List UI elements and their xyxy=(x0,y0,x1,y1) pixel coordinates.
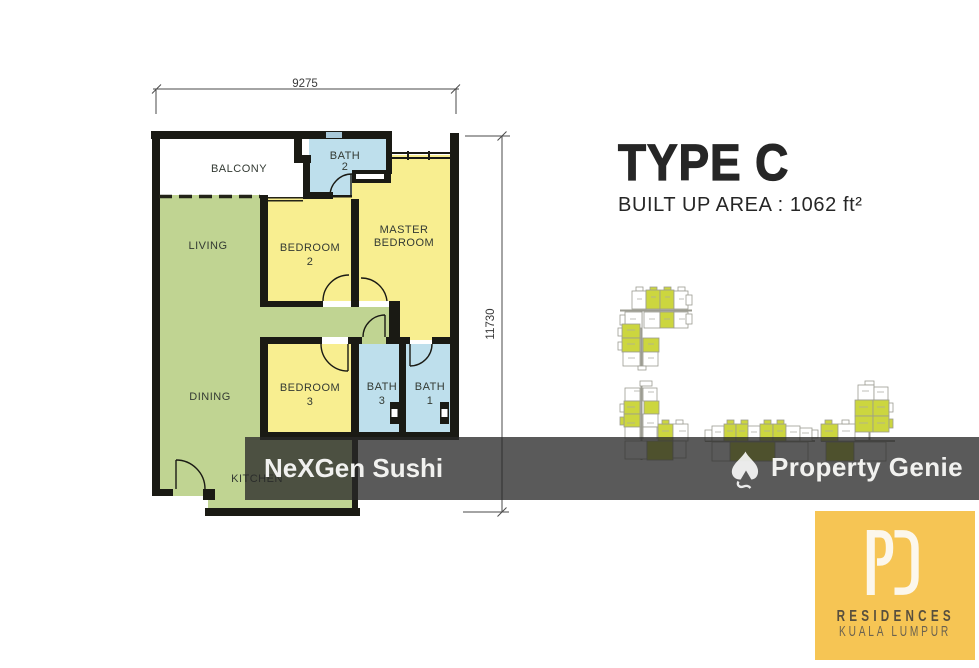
svg-text:9275: 9275 xyxy=(292,78,318,90)
svg-text:BEDROOM: BEDROOM xyxy=(280,242,340,254)
svg-text:DINING: DINING xyxy=(189,391,231,403)
svg-text:3: 3 xyxy=(307,396,314,408)
svg-text:BALCONY: BALCONY xyxy=(211,163,267,175)
svg-text:3: 3 xyxy=(379,395,386,407)
svg-text:BATH: BATH xyxy=(415,381,446,393)
svg-text:BEDROOM: BEDROOM xyxy=(374,237,434,249)
svg-text:1: 1 xyxy=(427,395,434,407)
svg-text:LIVING: LIVING xyxy=(188,240,227,252)
svg-text:MASTER: MASTER xyxy=(380,224,429,236)
svg-text:BEDROOM: BEDROOM xyxy=(280,382,340,394)
svg-text:2: 2 xyxy=(342,161,349,173)
svg-text:2: 2 xyxy=(307,256,314,268)
svg-text:11730: 11730 xyxy=(485,308,497,339)
svg-text:BATH: BATH xyxy=(367,381,398,393)
